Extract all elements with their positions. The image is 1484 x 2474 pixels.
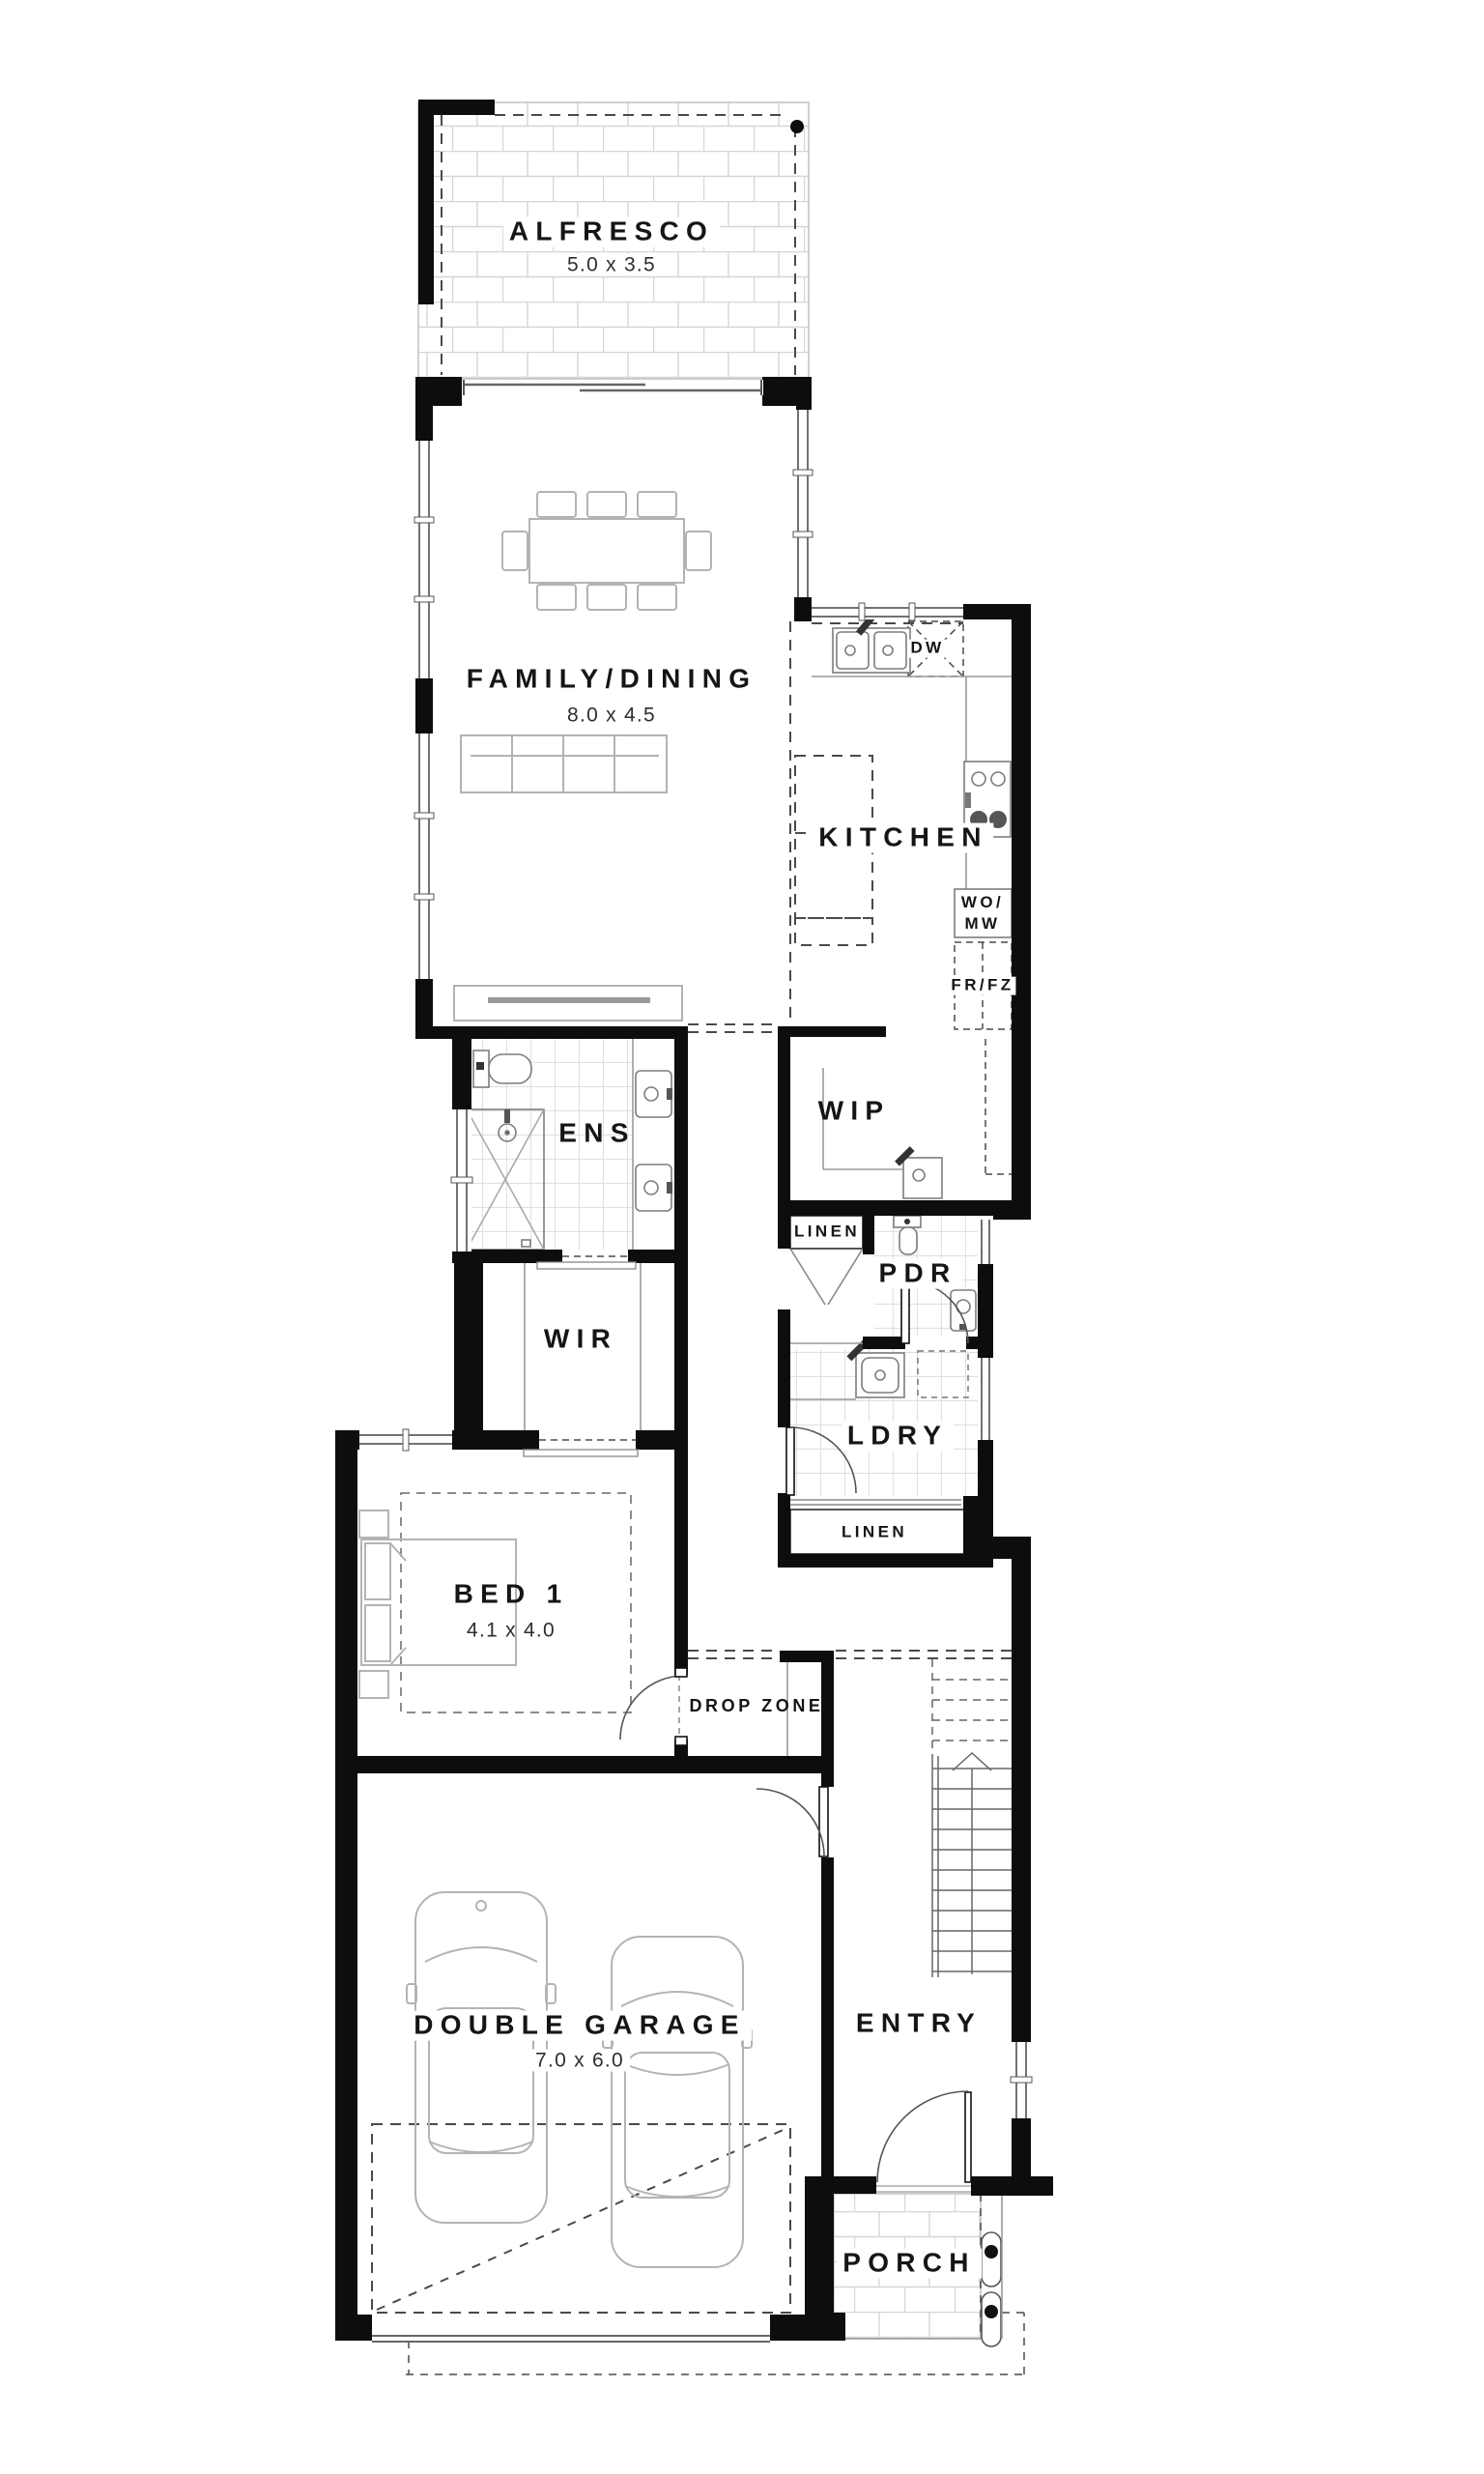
floor-plan-canvas: ALFRESCO 5.0 x 3.5 FAMILY/DINING 8.0 x 4…	[0, 0, 1484, 2474]
toilet-icon	[473, 1050, 531, 1087]
tv-unit-icon	[454, 986, 682, 1021]
closet-label-linen-upper: LINEN	[794, 1223, 860, 1242]
room-label-double-garage: DOUBLE GARAGE	[408, 2011, 752, 2041]
appliance-label-dishwasher: DW	[907, 640, 947, 658]
wall-oven-line2: MW	[964, 914, 1000, 933]
room-label-drop-zone: DROP ZONE	[689, 1697, 823, 1716]
room-label-ens: ENS	[558, 1119, 635, 1149]
room-label-wip: WIP	[818, 1097, 891, 1127]
room-label-pdr: PDR	[873, 1259, 963, 1289]
room-label-kitchen: KITCHEN	[813, 823, 993, 853]
kitchen-sink-icon	[833, 614, 910, 673]
basin-icon	[636, 1071, 672, 1211]
room-label-wir: WIR	[544, 1325, 617, 1355]
room-label-family-dining: FAMILY/DINING	[467, 665, 757, 695]
wall-oven-line1: WO/	[961, 893, 1004, 911]
room-label-porch: PORCH	[837, 2249, 982, 2279]
staircase	[932, 1753, 1012, 1977]
linen-slider-track	[790, 1500, 961, 1505]
room-label-bed1: BED 1	[454, 1580, 569, 1610]
room-label-entry: ENTRY	[856, 2009, 982, 2039]
car-icon	[603, 1937, 752, 2267]
basin-icon	[951, 1290, 976, 1331]
room-dim-family-dining: 8.0 x 4.5	[567, 704, 656, 726]
dining-table-icon	[529, 519, 684, 583]
room-dim-bed1: 4.1 x 4.0	[467, 1619, 556, 1641]
appliance-label-wall-oven: WO/ MW	[961, 892, 1004, 935]
wip-sink-icon	[895, 1146, 942, 1198]
linen-doors	[790, 1249, 863, 1305]
room-label-alfresco: ALFRESCO	[503, 217, 720, 247]
sofa-icon	[461, 735, 667, 792]
appliance-label-fridge: FR/FZ	[949, 977, 1015, 995]
floor-plan-drawing	[0, 0, 1484, 2474]
room-label-ldry: LDRY	[842, 1422, 954, 1452]
room-dim-double-garage: 7.0 x 6.0	[529, 2049, 630, 2071]
closet-label-linen-lower: LINEN	[842, 1524, 907, 1542]
room-dim-alfresco: 5.0 x 3.5	[561, 253, 662, 275]
